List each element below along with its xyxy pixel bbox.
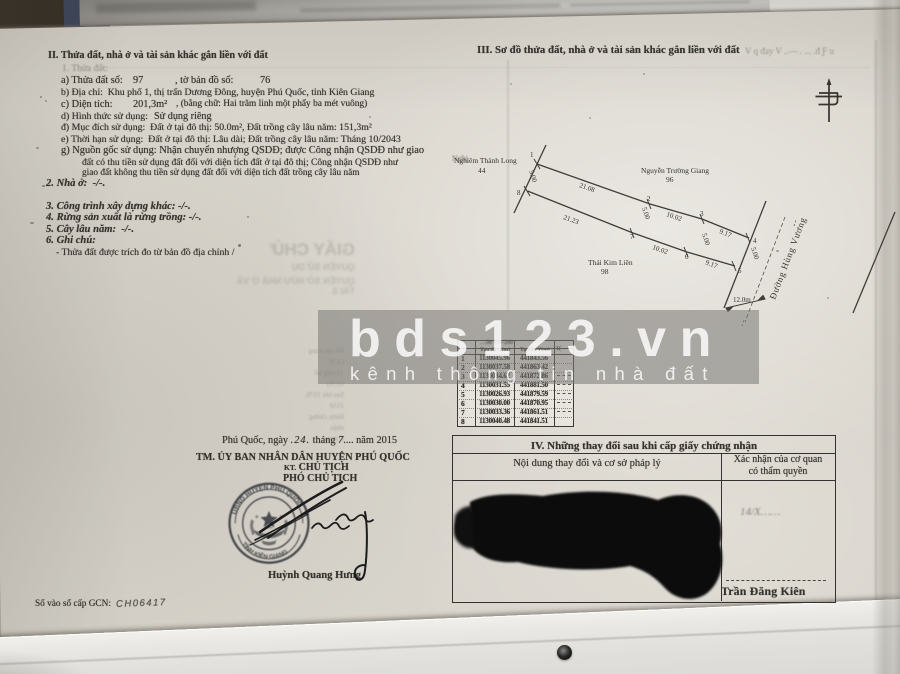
svg-text:21.23: 21.23 [562, 213, 580, 226]
svg-text:96: 96 [666, 175, 674, 184]
svg-text:5: 5 [738, 267, 742, 275]
svg-text:9.17: 9.17 [718, 227, 733, 239]
svg-text:1: 1 [530, 151, 534, 159]
svg-text:Thái Kim Liên: Thái Kim Liên [588, 258, 633, 267]
svg-text:8: 8 [517, 189, 521, 197]
svg-text:6: 6 [685, 253, 689, 261]
svg-text:7: 7 [630, 233, 634, 241]
svg-text:98: 98 [601, 267, 609, 276]
svg-text:3: 3 [700, 210, 704, 218]
svg-text:12.0m: 12.0m [733, 296, 751, 304]
svg-text:5.00: 5.00 [640, 206, 652, 221]
svg-text:21.08: 21.08 [578, 181, 596, 194]
svg-text:Đường Hùng Vương: Đường Hùng Vương [768, 216, 809, 301]
svg-text:4: 4 [753, 237, 757, 245]
svg-text:5.00: 5.00 [749, 246, 761, 261]
svg-text:Nguyễn Trường Giang: Nguyễn Trường Giang [641, 166, 709, 175]
svg-text:5.00: 5.00 [700, 232, 712, 247]
svg-text:2: 2 [647, 195, 651, 203]
svg-text:44: 44 [478, 166, 486, 175]
